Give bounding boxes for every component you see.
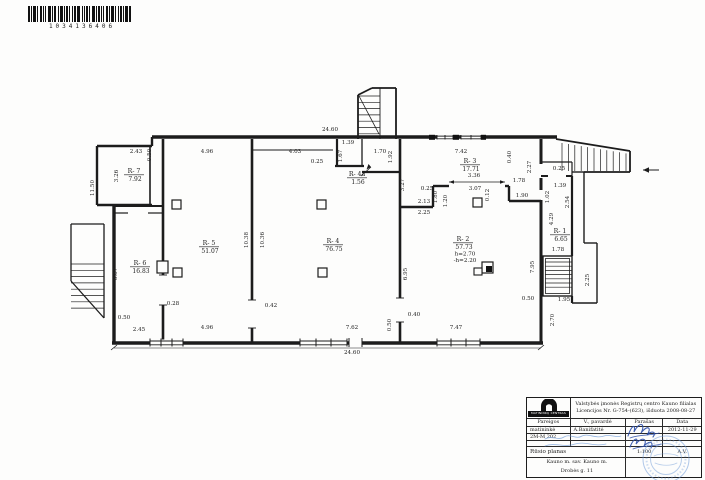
room-label: R- 4 [327,238,340,245]
room-area-label: 1.56 [351,179,365,186]
row1-position: matininkė [527,427,571,433]
address-line2: Drobės g. 11 [561,467,593,476]
dimension-label: 0.42 [265,303,278,309]
room-label: R- 2 [457,236,470,243]
dimension-label: 0.25 [421,186,434,192]
room-area-label: 57.73 [455,244,472,251]
dimension-label: 7.95 [530,260,536,273]
plan-rect [486,266,492,272]
scanned-floor-plan-page: 1034136406 2.430.504.964.0324.601.391.67… [0,0,705,480]
room-area-label: 17.71 [462,166,479,173]
dimension-label: 10.38 [244,232,250,248]
arrowhead [643,167,649,173]
room-label: R- 5 [203,240,216,247]
dimension-label: 1.39 [342,140,355,146]
dimension-label: 7.42 [455,149,468,155]
wall-line [111,345,117,350]
wall-line [556,139,630,151]
dimension-label: 6.95 [403,267,409,280]
dimension-label: 1.92 [388,150,394,163]
dimension-label: 2.27 [527,160,533,173]
plan-title: Rūsio planas [527,447,626,457]
room-label: R- 3 [464,158,477,165]
dimension-label: 3.36 [468,173,481,179]
dimension-label: 3.27 [400,178,406,191]
col-header-pavarde: V., pavardė [571,419,626,426]
dimension-label: 2.54 [565,195,571,208]
dimension-label: 11.50 [90,180,96,196]
plan-rect [172,200,181,209]
dimension-label: 4.29 [549,212,555,225]
dimension-label: 0.28 [167,301,180,307]
plan-rect [546,259,570,294]
dimension-label: 1.39 [554,183,567,189]
dimension-label: 2.43 [130,149,143,155]
plan-rect [317,200,326,209]
room-area-label: 7.92 [128,176,142,183]
room-label: R- 7 [128,168,141,175]
plan-rect [453,135,459,140]
room-label: R- 4a [349,171,366,178]
dimension-label: 2.13 [418,199,431,205]
dimension-label: 4.96 [201,325,214,331]
row2-signature-cell [626,434,664,440]
room-label: R- 6 [134,260,147,267]
arrowhead [449,180,454,184]
address-line1: Kauno m. sav. Kauno m. [547,458,608,467]
surveyor-logo: MATININKŲ CENTRAS [527,398,571,418]
dimension-label: 0.40 [507,150,513,163]
room-area-label: 76.75 [325,246,342,253]
wall-line [71,281,104,318]
dimension-label: 10.36 [260,232,266,248]
room-extra-label: h=2.70 [455,252,476,258]
dimension-label: 1.78 [513,178,526,184]
row3-empty [527,441,571,446]
dimension-label: 1.90 [516,193,529,199]
dimension-label: 0.50 [387,318,393,331]
row2-name-cell [571,434,626,440]
dimension-label: 2.25 [418,210,431,216]
dimension-label: 2.45 [133,327,146,333]
wall-line [538,345,544,350]
plan-rect [473,198,482,207]
row1-signature-cell [626,427,664,433]
logo-band-text: MATININKŲ CENTRAS [528,411,569,417]
col-header-pareigos: Pareigos [527,419,571,426]
arrowhead [500,180,505,184]
dimension-label: 1.95 [558,297,571,303]
plan-rect [349,340,362,347]
dimension-label: 1.20 [443,194,449,207]
dimension-label: 0.50 [147,148,153,161]
dimension-label: 1.78 [552,247,565,253]
dimension-label: 4.96 [201,149,214,155]
plan-rect [173,268,182,277]
dimension-label: 1.80 [433,190,439,203]
dimension-label: 6.87 [113,267,119,280]
row1-date: 2012-11-29 [663,427,701,433]
dimension-label: 3.07 [469,186,482,192]
col-header-data: Data [663,419,701,426]
plan-rect [429,135,435,140]
wall-line [358,88,372,95]
plan-rect [474,268,482,275]
stamp-area [626,458,701,477]
plan-rect [318,268,327,277]
dimension-label: 2.25 [585,273,591,286]
plan-rect [157,261,168,273]
dimension-label: 1.02 [545,190,551,203]
stamp-label: A.V. [663,447,701,457]
title-block: MATININKŲ CENTRAS Valstybės įmonės Regis… [526,397,702,478]
dimension-label: 4.03 [289,149,302,155]
room-label: R- 1 [554,228,567,235]
room-area-label: 51.07 [201,248,218,255]
org-info: Valstybės įmonės Registrų centro Kauno f… [571,398,701,418]
row2-code: 2M-M 202 [527,434,571,440]
plan-scale: 1:100 [626,447,664,457]
dimension-label: 0.25 [553,166,566,172]
room-area-label: 6.65 [554,236,568,243]
dimension-label: 0.12 [485,188,491,201]
dimension-label: 0.50 [118,315,131,321]
row2-date-cell [663,434,701,440]
dimension-label: 1.67 [338,149,344,162]
col-header-parasas: Parašas [626,419,664,426]
dimension-label: 3.26 [114,169,120,182]
org-name: Valstybės įmonės Registrų centro Kauno f… [575,401,696,409]
dimension-label: 24.60 [322,127,338,133]
dimension-label: 0.50 [522,296,535,302]
dimension-label: 2.70 [550,313,556,326]
address-cell: Kauno m. sav. Kauno m. Drobės g. 11 [527,458,626,477]
row1-name: A.Banifatitė [571,427,626,433]
room-area-label: 16.83 [132,268,149,275]
room-extra-label: -h=2.20 [454,258,477,264]
dimension-label: 7.47 [450,325,463,331]
plan-rect [481,135,486,140]
dimension-label: 1.70 [374,149,387,155]
dimension-label: 24.60 [344,350,360,356]
dimension-label: 0.25 [311,159,324,165]
org-licence: Licencijos Nr. G-754-(623), išduota 2008… [576,408,695,416]
dimension-label: 0.40 [408,312,421,318]
dimension-label: 7.62 [346,325,359,331]
